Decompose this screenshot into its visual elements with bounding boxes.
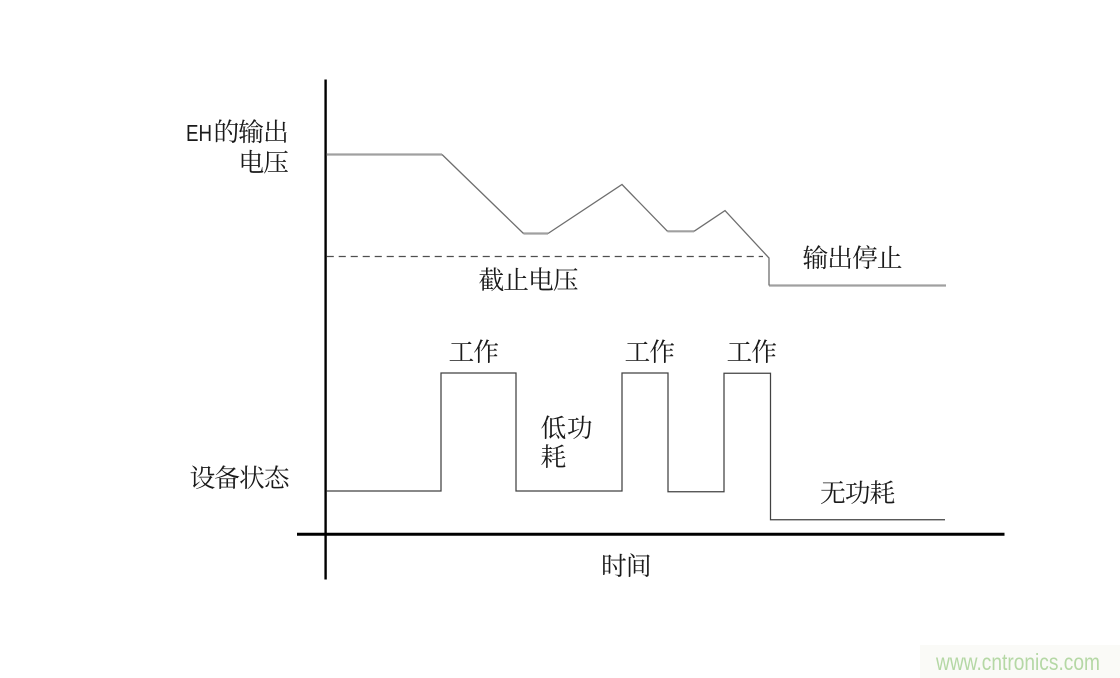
svg-text:EH: EH	[186, 120, 212, 146]
svg-text:www.cntronics.com: www.cntronics.com	[935, 649, 1100, 675]
